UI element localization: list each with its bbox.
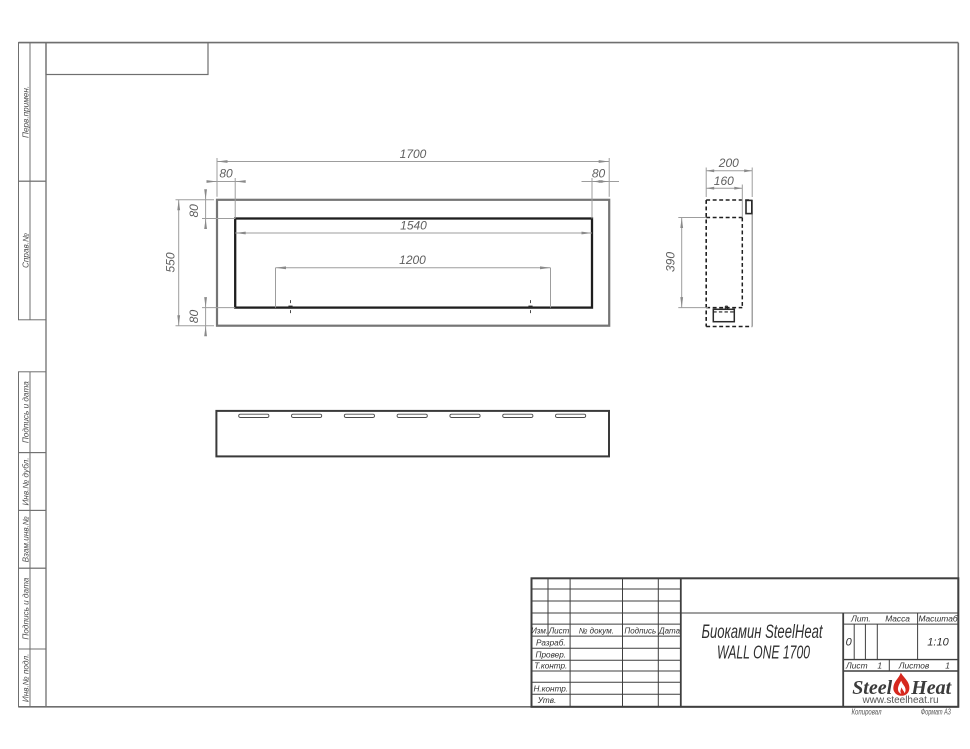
svg-text:WALL ONE 1700: WALL ONE 1700 [717,643,810,663]
svg-text:80: 80 [592,167,606,181]
svg-text:Изм.: Изм. [531,627,548,636]
svg-text:Масса: Масса [885,613,910,623]
svg-text:Провер.: Провер. [536,651,567,660]
svg-text:Т.контр.: Т.контр. [534,662,567,671]
svg-text:1200: 1200 [399,253,426,267]
svg-text:Лист: Лист [548,627,570,636]
svg-text:1: 1 [877,661,882,671]
svg-text:Инв.№ дубл.: Инв.№ дубл. [22,457,31,505]
svg-text:550: 550 [164,252,178,272]
svg-text:0: 0 [846,637,853,649]
svg-text:160: 160 [714,174,734,188]
svg-text:1540: 1540 [400,219,427,233]
svg-text:Подпись и дата: Подпись и дата [22,577,31,639]
svg-text:80: 80 [187,204,201,218]
svg-text:Инв.№ подл.: Инв.№ подл. [22,654,31,703]
svg-text:Взам.инв.№: Взам.инв.№ [22,516,31,562]
svg-text:1: 1 [945,661,950,671]
svg-text:www.steelheat.ru: www.steelheat.ru [862,695,939,706]
svg-text:1:10: 1:10 [927,637,949,649]
svg-text:Утв.: Утв. [537,696,557,705]
svg-text:Дата: Дата [658,627,681,636]
svg-text:Копировал: Копировал [852,707,882,716]
svg-text:Подпись и дата: Подпись и дата [22,381,31,443]
svg-text:390: 390 [663,252,677,272]
svg-text:80: 80 [219,167,233,181]
svg-text:Лит.: Лит. [850,613,871,623]
svg-text:Листов: Листов [898,661,930,671]
svg-text:80: 80 [187,310,201,324]
svg-text:Лист: Лист [845,661,868,671]
svg-text:Подпись: Подпись [624,627,656,636]
svg-text:Перв.примен.: Перв.примен. [22,86,31,138]
svg-text:Справ.№: Справ.№ [22,233,31,268]
svg-text:Формат А3: Формат А3 [921,707,951,716]
svg-text:Масштаб: Масштаб [918,613,957,623]
svg-text:Разраб.: Разраб. [536,639,566,648]
svg-text:Биокамин SteelHeat: Биокамин SteelHeat [702,622,823,643]
svg-text:200: 200 [718,156,739,170]
svg-text:1700: 1700 [400,147,427,161]
svg-text:№ докум.: № докум. [579,627,614,636]
svg-text:Н.контр.: Н.контр. [533,685,568,694]
